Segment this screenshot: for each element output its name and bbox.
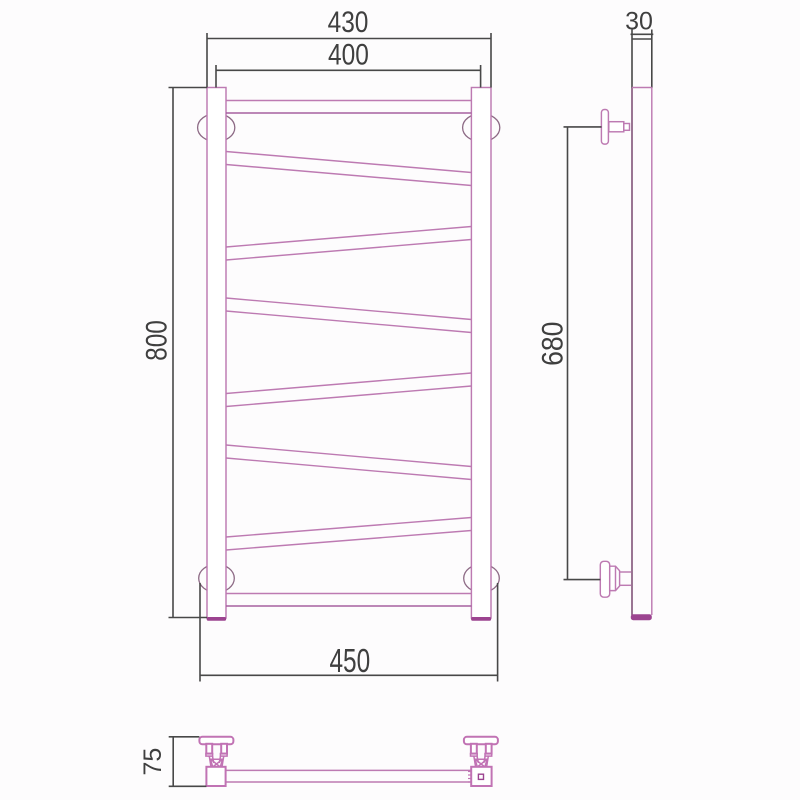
svg-text:75: 75 <box>139 748 167 776</box>
svg-text:800: 800 <box>139 320 173 361</box>
svg-text:450: 450 <box>329 644 370 680</box>
svg-text:680: 680 <box>536 322 569 366</box>
svg-text:30: 30 <box>625 8 653 36</box>
svg-text:430: 430 <box>328 5 369 39</box>
svg-text:400: 400 <box>328 37 369 71</box>
